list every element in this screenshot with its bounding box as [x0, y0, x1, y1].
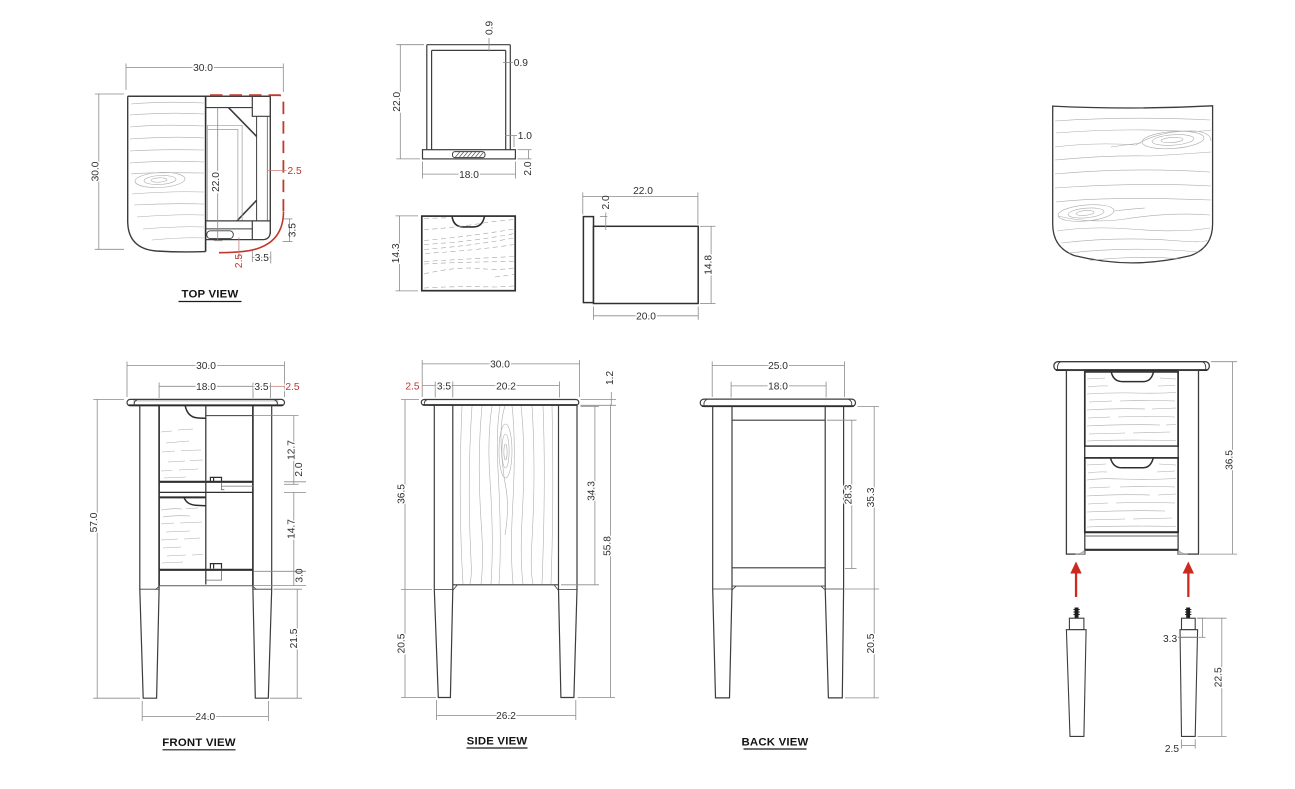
svg-text:2.5: 2.5 [234, 254, 245, 268]
svg-text:24.0: 24.0 [195, 712, 215, 723]
svg-text:3.5: 3.5 [437, 381, 451, 392]
svg-text:34.3: 34.3 [587, 481, 598, 501]
svg-text:22.0: 22.0 [211, 172, 222, 192]
svg-text:35.3: 35.3 [866, 487, 877, 507]
svg-text:FRONT VIEW: FRONT VIEW [162, 737, 236, 749]
svg-text:55.8: 55.8 [602, 536, 613, 556]
svg-text:18.0: 18.0 [459, 170, 479, 181]
svg-text:14.3: 14.3 [391, 243, 402, 263]
svg-text:22.0: 22.0 [392, 92, 403, 112]
svg-text:2.5: 2.5 [1165, 744, 1179, 755]
svg-text:36.5: 36.5 [1224, 450, 1235, 470]
svg-text:30.0: 30.0 [193, 63, 213, 74]
svg-text:57.0: 57.0 [89, 512, 100, 532]
svg-text:3.5: 3.5 [254, 382, 268, 393]
svg-text:22.5: 22.5 [1214, 667, 1225, 687]
svg-text:20.0: 20.0 [636, 311, 656, 322]
svg-text:20.2: 20.2 [496, 381, 516, 392]
svg-text:SIDE VIEW: SIDE VIEW [467, 736, 528, 748]
svg-text:18.0: 18.0 [768, 382, 788, 393]
svg-text:14.7: 14.7 [286, 519, 297, 539]
svg-text:BACK VIEW: BACK VIEW [742, 737, 809, 749]
svg-text:36.5: 36.5 [397, 484, 408, 504]
svg-text:12.7: 12.7 [287, 440, 298, 460]
svg-text:21.5: 21.5 [289, 628, 300, 648]
svg-text:2.0: 2.0 [294, 462, 305, 476]
svg-text:2.0: 2.0 [601, 195, 612, 209]
svg-text:2.5: 2.5 [288, 166, 302, 177]
svg-text:1.2: 1.2 [605, 371, 616, 385]
svg-text:3.5: 3.5 [255, 253, 269, 264]
svg-text:3.0: 3.0 [294, 568, 305, 582]
svg-text:0.9: 0.9 [514, 58, 528, 69]
svg-text:TOP VIEW: TOP VIEW [182, 289, 239, 301]
svg-text:3.5: 3.5 [287, 223, 298, 237]
svg-text:25.0: 25.0 [768, 361, 788, 372]
svg-text:2.0: 2.0 [523, 161, 534, 175]
svg-text:26.2: 26.2 [496, 711, 516, 722]
svg-text:0.9: 0.9 [484, 21, 495, 35]
svg-text:3.3: 3.3 [1163, 634, 1177, 645]
svg-text:28.3: 28.3 [844, 484, 855, 504]
svg-text:2.5: 2.5 [405, 381, 419, 392]
svg-text:30.0: 30.0 [490, 360, 510, 371]
svg-text:30.0: 30.0 [196, 361, 216, 372]
svg-text:2.5: 2.5 [285, 382, 299, 393]
svg-text:20.5: 20.5 [866, 633, 877, 653]
svg-text:18.0: 18.0 [196, 382, 216, 393]
svg-text:14.8: 14.8 [704, 255, 715, 275]
svg-text:22.0: 22.0 [633, 186, 653, 197]
svg-text:1.0: 1.0 [518, 131, 532, 142]
svg-text:30.0: 30.0 [91, 161, 102, 181]
svg-text:20.5: 20.5 [397, 633, 408, 653]
